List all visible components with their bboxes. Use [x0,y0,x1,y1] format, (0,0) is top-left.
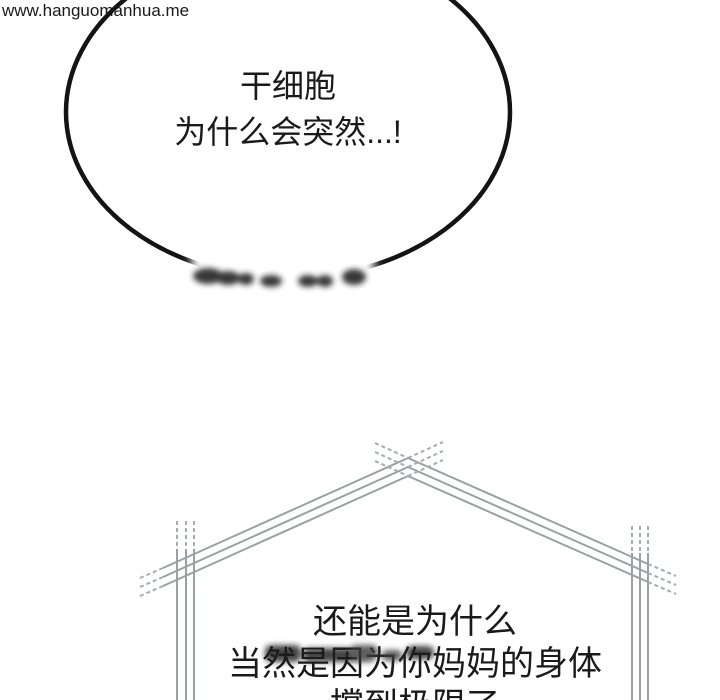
dialogue-line-1: 还能是为什么 [165,601,665,643]
bubble-line-1: 干细胞 [88,63,488,109]
house-sketch-dashes [140,442,676,596]
speech-bubble-text: 干细胞 为什么会突然...! [88,63,488,155]
comic-page: www.hanguomanhua.me [0,0,720,700]
dialogue-line-2: 当然是因为你妈妈的身体 [165,643,665,685]
roof-right-slope [408,458,648,582]
bubble-line-2: 为什么会突然...! [88,109,488,155]
dialogue-line-3: 撑到极限了 [165,685,665,700]
dialogue-text: 还能是为什么 当然是因为你妈妈的身体 撑到极限了 [165,601,665,700]
roof-left-slope [163,458,408,586]
